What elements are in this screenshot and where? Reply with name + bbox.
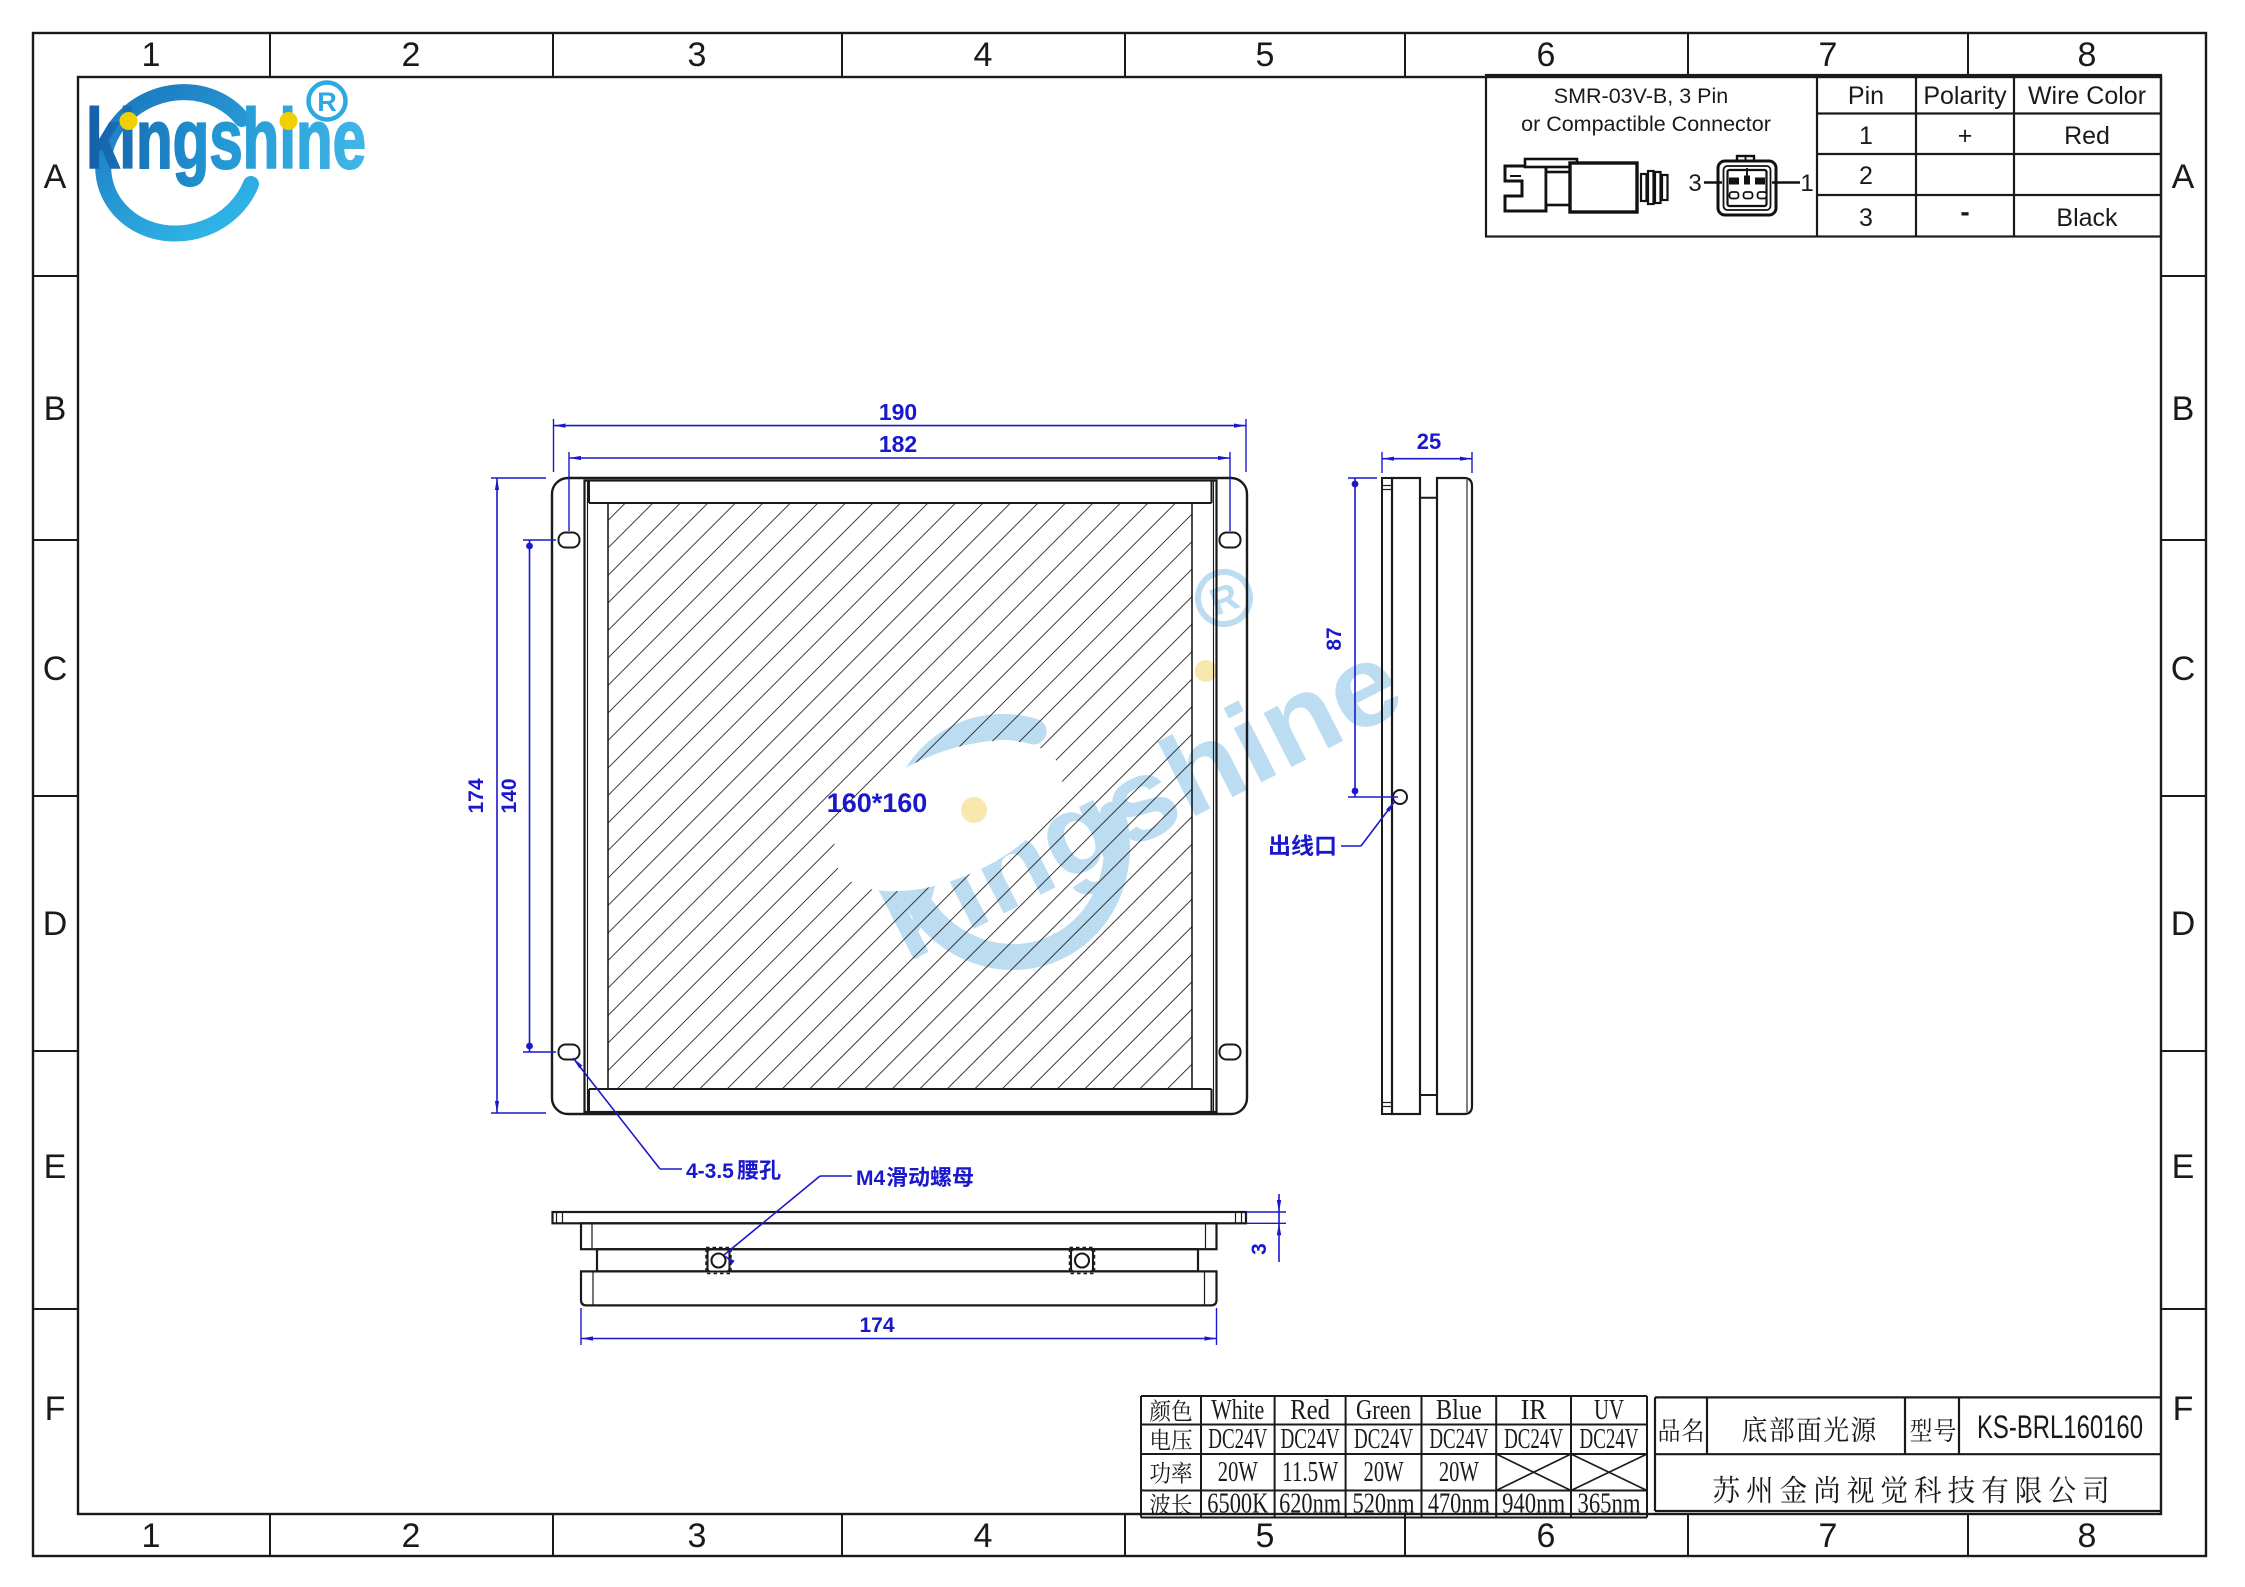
svg-text:D: D <box>43 905 68 943</box>
svg-text:1: 1 <box>1859 122 1873 150</box>
svg-text:20W: 20W <box>1439 1457 1479 1488</box>
svg-text:1: 1 <box>1800 170 1813 197</box>
svg-text:A: A <box>2172 158 2195 196</box>
svg-text:7: 7 <box>1819 1517 1838 1555</box>
svg-text:174: 174 <box>465 778 488 813</box>
svg-text:Green: Green <box>1356 1395 1411 1426</box>
svg-text:DC24V: DC24V <box>1504 1424 1563 1455</box>
svg-text:3: 3 <box>688 1517 707 1555</box>
svg-text:F: F <box>2173 1390 2194 1428</box>
svg-text:174: 174 <box>859 1314 894 1337</box>
svg-text:B: B <box>44 390 67 428</box>
svg-text:3: 3 <box>688 36 707 74</box>
svg-text:Blue: Blue <box>1436 1395 1482 1426</box>
svg-text:4: 4 <box>974 36 993 74</box>
svg-text:25: 25 <box>1417 429 1441 454</box>
svg-text:6: 6 <box>1537 36 1556 74</box>
svg-text:6500K: 6500K <box>1207 1489 1268 1520</box>
svg-text:E: E <box>2172 1148 2195 1186</box>
svg-text:F: F <box>45 1390 66 1428</box>
svg-text:DC24V: DC24V <box>1580 1424 1639 1455</box>
svg-text:DC24V: DC24V <box>1429 1424 1488 1455</box>
svg-text:20W: 20W <box>1218 1457 1258 1488</box>
svg-text:Black: Black <box>2056 204 2118 232</box>
svg-text:C: C <box>2171 650 2196 688</box>
svg-text:190: 190 <box>879 399 917 425</box>
svg-text:Wire Color: Wire Color <box>2028 82 2146 110</box>
svg-text:B: B <box>2172 390 2195 428</box>
svg-text:Red: Red <box>2064 122 2110 150</box>
svg-text:1: 1 <box>142 1517 161 1555</box>
svg-text:7: 7 <box>1819 36 1838 74</box>
svg-text:+: + <box>1958 122 1973 150</box>
svg-text:4-3.5: 4-3.5 <box>686 1160 734 1183</box>
svg-text:140: 140 <box>498 778 521 813</box>
svg-text:D: D <box>2171 905 2196 943</box>
svg-text:E: E <box>44 1148 67 1186</box>
svg-text:470nm: 470nm <box>1428 1489 1490 1520</box>
svg-text:520nm: 520nm <box>1353 1489 1415 1520</box>
svg-text:182: 182 <box>879 431 917 457</box>
svg-text:11.5W: 11.5W <box>1282 1457 1338 1488</box>
svg-text:2: 2 <box>402 1517 421 1555</box>
svg-text:940nm: 940nm <box>1502 1489 1565 1520</box>
svg-text:2: 2 <box>402 36 421 74</box>
svg-text:160*160: 160*160 <box>827 788 928 818</box>
svg-text:20W: 20W <box>1364 1457 1404 1488</box>
svg-text:or Compactible Connector: or Compactible Connector <box>1521 112 1771 136</box>
svg-text:8: 8 <box>2078 1517 2097 1555</box>
svg-text:1: 1 <box>142 36 161 74</box>
svg-text:3: 3 <box>1688 170 1701 197</box>
svg-text:365nm: 365nm <box>1578 1489 1641 1520</box>
svg-text:2: 2 <box>1859 162 1873 190</box>
svg-text:DC24V: DC24V <box>1281 1424 1340 1455</box>
svg-text:SMR-03V-B, 3 Pin: SMR-03V-B, 3 Pin <box>1554 84 1728 108</box>
svg-text:DC24V: DC24V <box>1354 1424 1413 1455</box>
svg-text:3: 3 <box>1859 204 1873 232</box>
svg-text:A: A <box>44 158 67 196</box>
svg-text:DC24V: DC24V <box>1208 1424 1267 1455</box>
svg-text:-: - <box>1960 196 1969 227</box>
svg-text:620nm: 620nm <box>1279 1489 1341 1520</box>
svg-text:87: 87 <box>1323 627 1346 650</box>
svg-text:Red: Red <box>1290 1395 1330 1426</box>
svg-text:M4: M4 <box>856 1167 885 1190</box>
svg-text:4: 4 <box>974 1517 993 1555</box>
svg-text:KS-BRL160160: KS-BRL160160 <box>1977 1409 2143 1445</box>
svg-text:IR: IR <box>1521 1395 1547 1426</box>
svg-text:5: 5 <box>1256 36 1275 74</box>
svg-text:White: White <box>1211 1395 1264 1426</box>
svg-text:R: R <box>317 87 337 117</box>
svg-text:8: 8 <box>2078 36 2097 74</box>
svg-text:Polarity: Polarity <box>1923 82 2007 110</box>
svg-text:Pin: Pin <box>1848 82 1884 110</box>
svg-text:5: 5 <box>1256 1517 1275 1555</box>
svg-text:C: C <box>43 650 68 688</box>
svg-text:UV: UV <box>1594 1395 1624 1426</box>
svg-text:3: 3 <box>1248 1243 1271 1255</box>
svg-text:6: 6 <box>1537 1517 1556 1555</box>
